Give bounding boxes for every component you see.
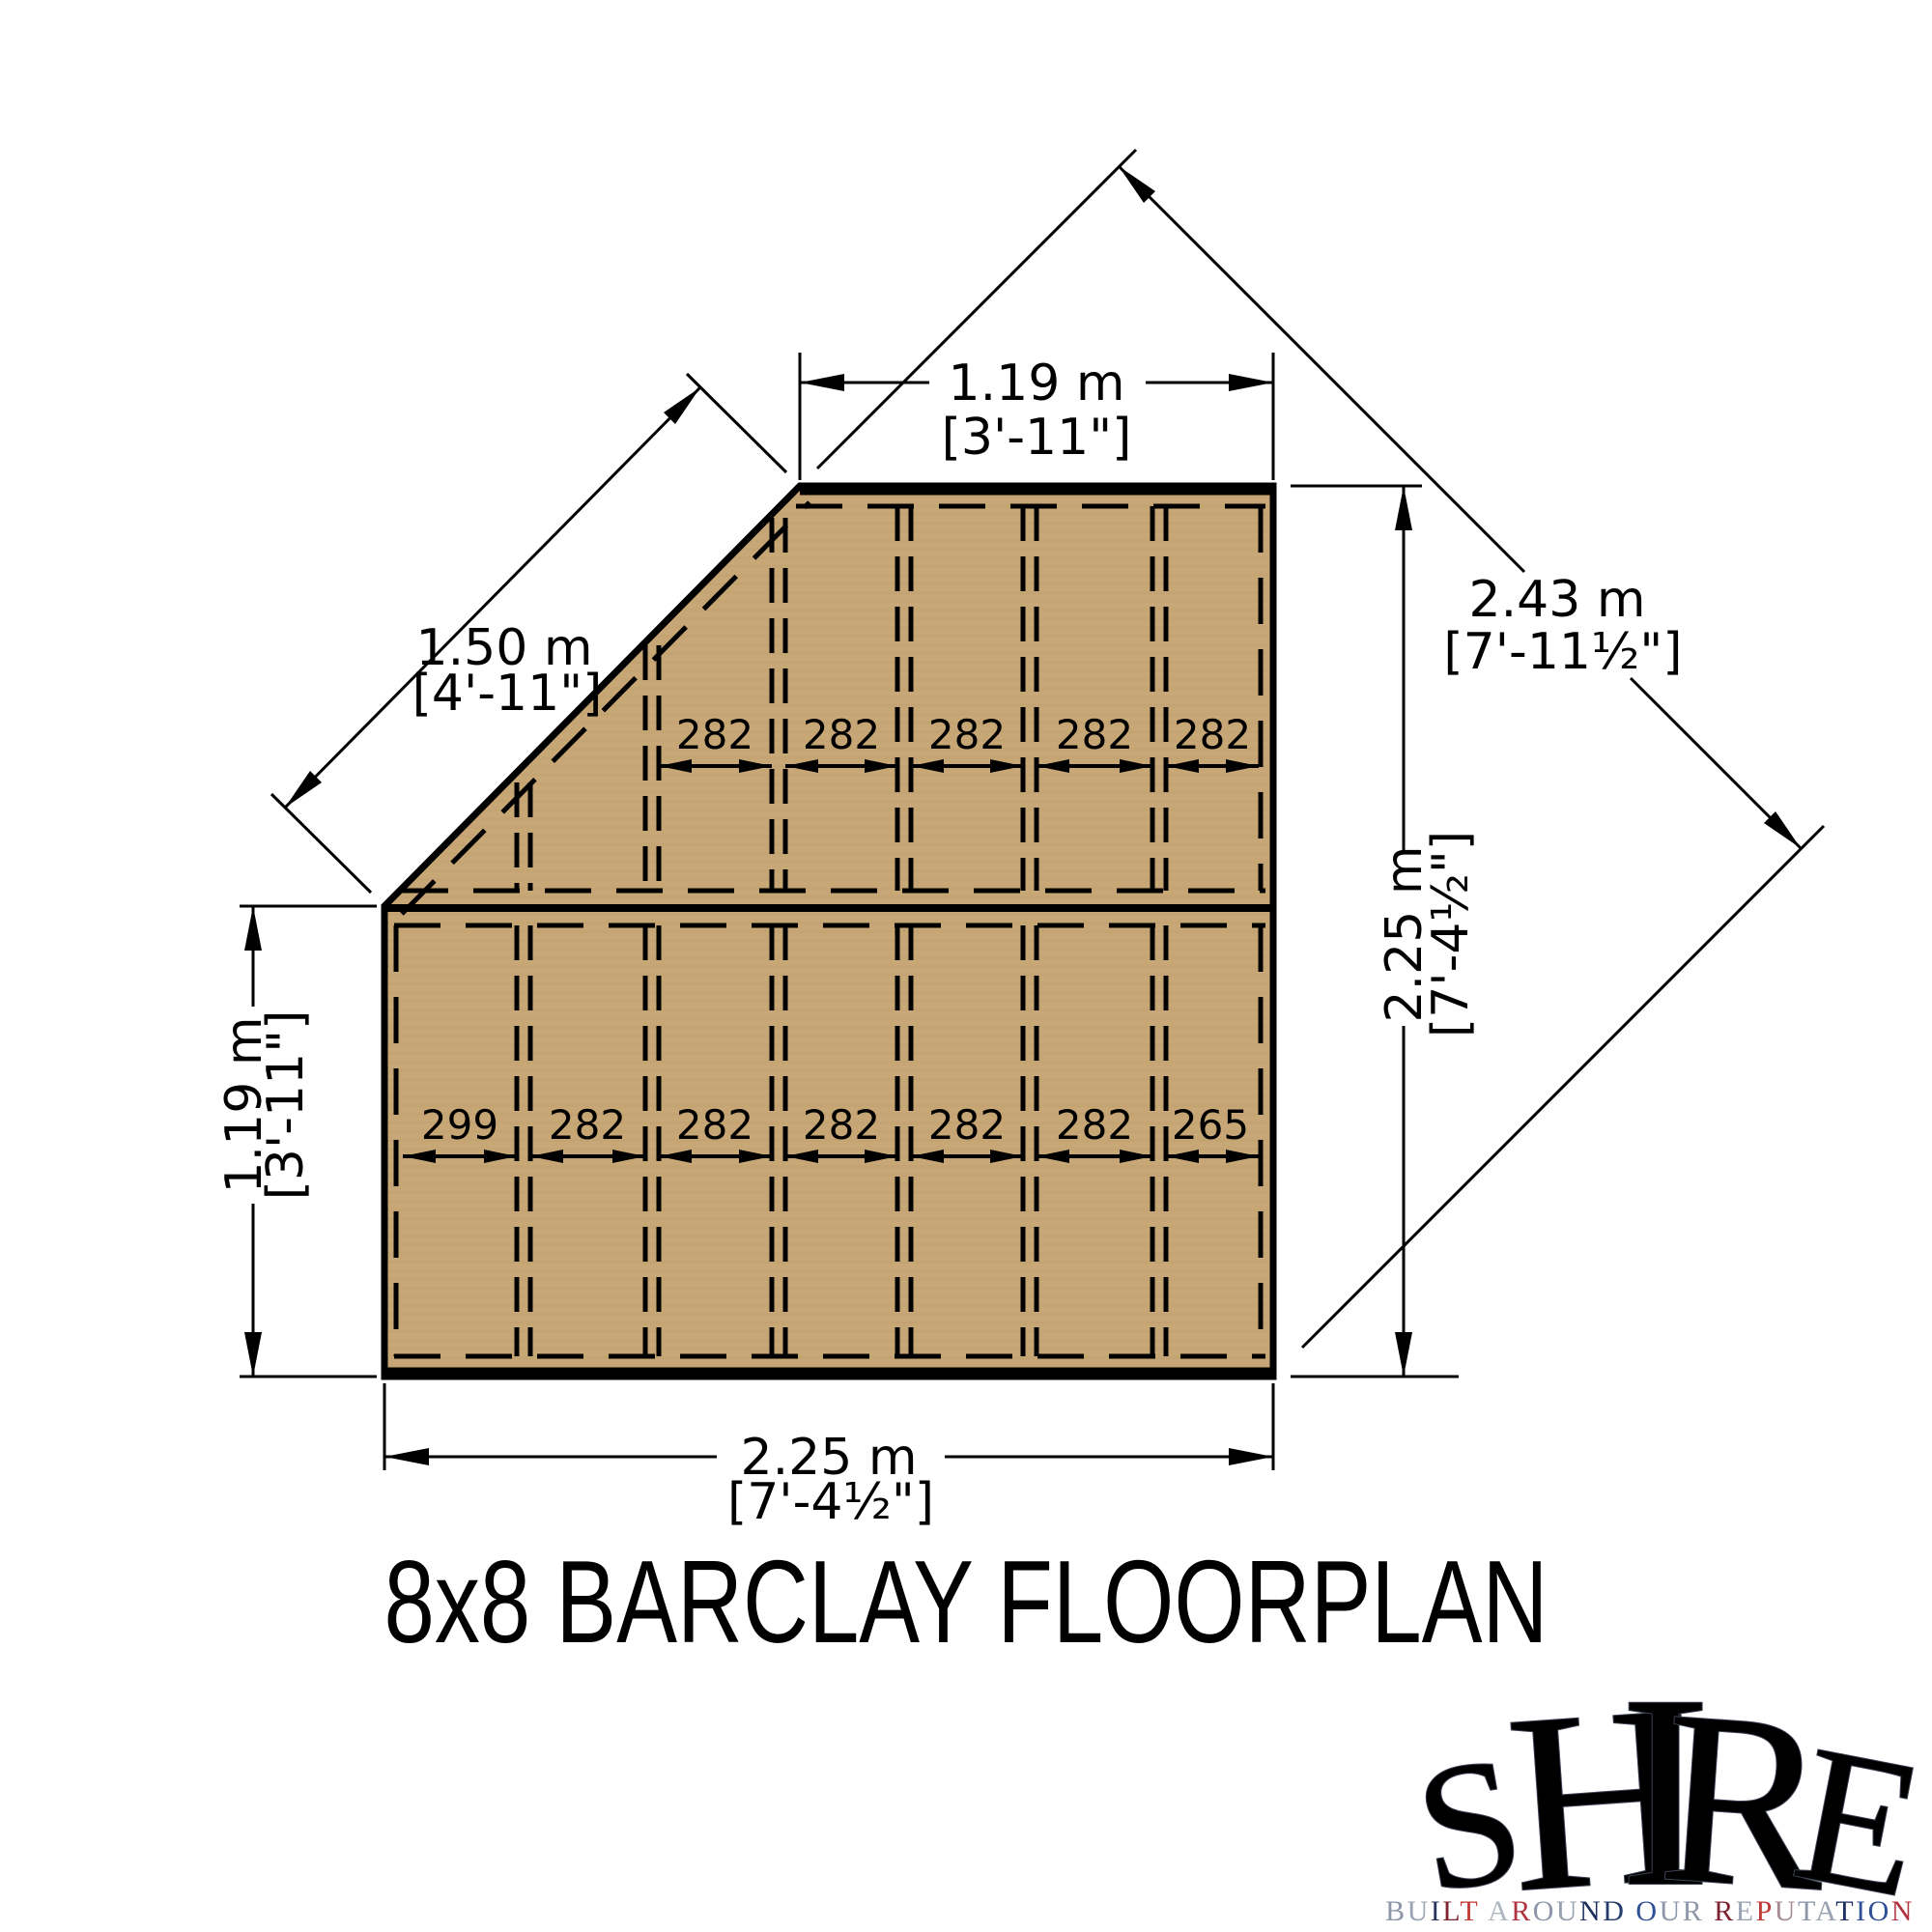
spacing-label: 265 — [1172, 1101, 1249, 1149]
arrowhead — [1229, 374, 1273, 391]
arrowhead — [1395, 1332, 1412, 1377]
spacing-label: 282 — [928, 1101, 1006, 1149]
shire-logo: S H I R E BUILT AROUND OUR REPUTATION — [1385, 1637, 1932, 1932]
spacing-label: 282 — [549, 1101, 626, 1149]
dim-bottom-imperial: [7'-4½"] — [727, 1473, 934, 1531]
spacing-label: 282 — [1056, 1101, 1133, 1149]
floorplan-diagram: 282 282 282 282 282 299 282 282 282 282 … — [0, 0, 1932, 1932]
dim-diag-wall-imperial: [4'-11"] — [412, 665, 603, 723]
dim-diag-overall-imperial: [7'-11½"] — [1443, 623, 1682, 681]
spacing-label: 282 — [676, 711, 753, 758]
logo-tagline: BUILT AROUND OUR REPUTATION — [1385, 1895, 1915, 1927]
spacing-label: 282 — [803, 711, 880, 758]
dim-top-imperial: [3'-11"] — [942, 409, 1132, 467]
dim-left-imperial: [3'-11"] — [257, 1010, 315, 1201]
arrowhead — [1229, 1448, 1273, 1465]
dim-bottom: 2.25 m [7'-4½"] — [384, 1383, 1273, 1531]
dim-diag-overall-metric: 2.43 m — [1469, 571, 1646, 629]
spacing-label: 282 — [676, 1101, 753, 1149]
page-title: 8x8 BARCLAY FLOORPLAN — [384, 1536, 1548, 1667]
dim-left: 1.19 m [3'-11"] — [215, 906, 377, 1377]
arrowhead — [244, 1332, 262, 1377]
dim-right-imperial: [7'-4½"] — [1422, 831, 1480, 1037]
spacing-label: 282 — [1056, 711, 1133, 758]
dim-right: 2.25 m [7'-4½"] — [1291, 486, 1480, 1377]
spacing-label: 282 — [928, 711, 1006, 758]
arrowhead — [384, 1448, 429, 1465]
dim-top-metric: 1.19 m — [949, 355, 1125, 412]
arrowhead — [1395, 486, 1412, 530]
spacing-label: 282 — [1174, 711, 1251, 758]
arrowhead — [800, 374, 844, 391]
spacing-label: 299 — [421, 1101, 498, 1149]
spacing-label: 282 — [803, 1101, 880, 1149]
arrowhead — [244, 906, 262, 951]
